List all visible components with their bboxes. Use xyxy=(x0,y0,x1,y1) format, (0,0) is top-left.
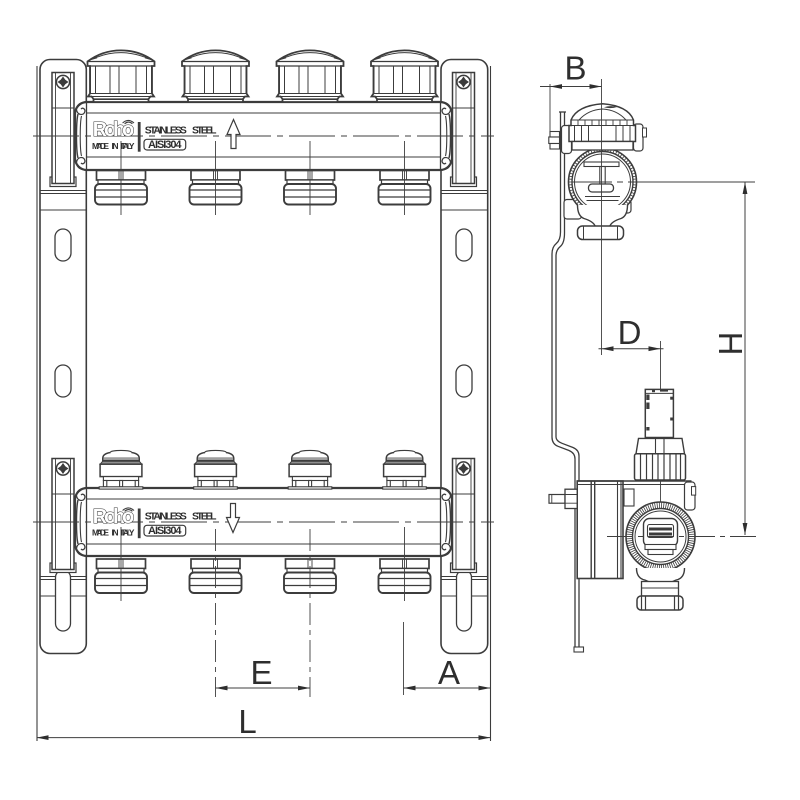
svg-text:MADEINITALY: MADEINITALY xyxy=(92,527,135,537)
svg-text:AISI304: AISI304 xyxy=(148,525,182,537)
svg-text:D: D xyxy=(618,314,642,351)
svg-text:L: L xyxy=(238,703,256,740)
svg-text:STAINLESSSTEEL: STAINLESSSTEEL xyxy=(145,126,217,137)
svg-text:A: A xyxy=(438,654,460,691)
svg-text:B: B xyxy=(564,50,586,87)
svg-text:E: E xyxy=(250,654,272,691)
svg-text:H: H xyxy=(712,332,749,356)
svg-text:STAINLESSSTEEL: STAINLESSSTEEL xyxy=(145,512,217,523)
svg-text:MADEINITALY: MADEINITALY xyxy=(92,141,135,151)
svg-text:AISI304: AISI304 xyxy=(148,139,182,151)
